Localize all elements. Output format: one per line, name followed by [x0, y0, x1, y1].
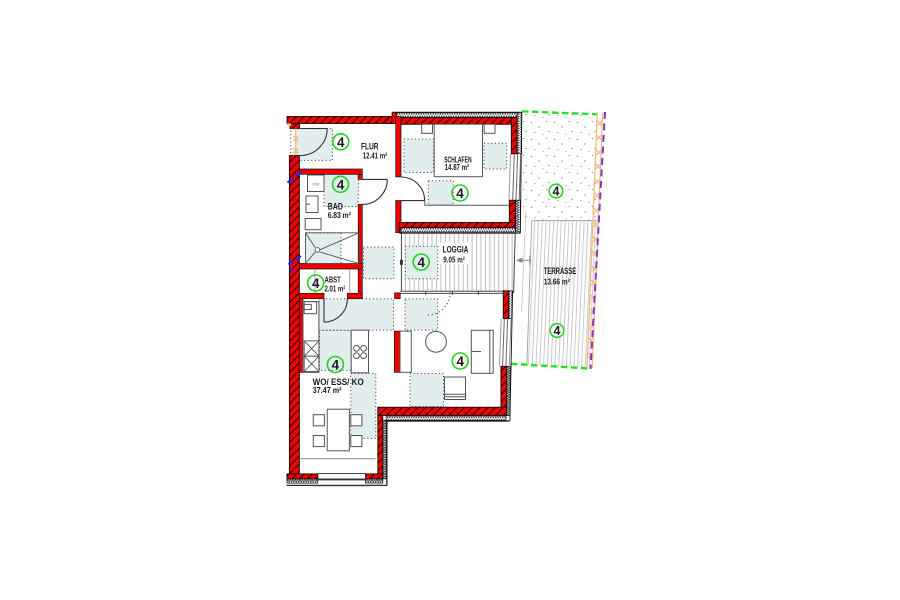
svg-text:FLUR: FLUR — [361, 141, 379, 151]
svg-text:LOGGIA: LOGGIA — [443, 244, 469, 254]
svg-text:4: 4 — [554, 324, 561, 338]
svg-text:4: 4 — [553, 185, 560, 199]
svg-text:4: 4 — [456, 186, 464, 201]
svg-text:4: 4 — [332, 358, 340, 373]
svg-text:ABST: ABST — [325, 274, 342, 284]
svg-text:4: 4 — [337, 177, 345, 192]
svg-text:13.66 m²: 13.66 m² — [544, 278, 570, 287]
svg-text:37.47 m²: 37.47 m² — [313, 386, 342, 395]
svg-text:TERRASSE: TERRASSE — [544, 266, 577, 277]
svg-text:4: 4 — [417, 255, 425, 270]
svg-text:14.87 m²: 14.87 m² — [445, 163, 469, 172]
svg-text:4: 4 — [456, 354, 464, 369]
svg-text:BAD: BAD — [328, 201, 344, 211]
svg-text:2.01 m²: 2.01 m² — [325, 285, 346, 294]
svg-text:4: 4 — [312, 276, 320, 291]
svg-text:9.05 m²: 9.05 m² — [443, 255, 465, 264]
svg-text:WM: WM — [312, 182, 319, 187]
svg-text:12.41 m²: 12.41 m² — [363, 152, 388, 161]
svg-text:6.83 m²: 6.83 m² — [328, 211, 351, 220]
svg-text:4: 4 — [337, 135, 345, 150]
